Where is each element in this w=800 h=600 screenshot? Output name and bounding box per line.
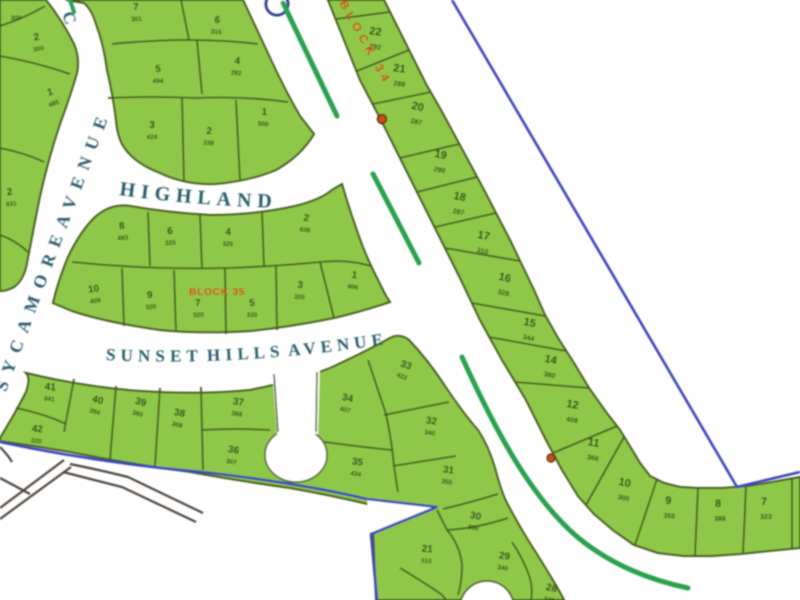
svg-text:315: 315 — [210, 29, 222, 37]
svg-text:21: 21 — [421, 544, 433, 556]
svg-text:18: 18 — [452, 190, 466, 204]
svg-text:9: 9 — [665, 495, 672, 507]
svg-text:29: 29 — [498, 550, 511, 563]
svg-text:42: 42 — [31, 424, 43, 436]
svg-text:386: 386 — [714, 516, 726, 523]
svg-text:7: 7 — [761, 496, 767, 508]
svg-text:300: 300 — [11, 15, 22, 22]
svg-text:338: 338 — [203, 140, 215, 148]
svg-text:5: 5 — [155, 64, 161, 75]
svg-text:510: 510 — [421, 558, 433, 566]
svg-text:10: 10 — [617, 476, 631, 490]
svg-text:5: 5 — [249, 298, 255, 309]
svg-text:323: 323 — [760, 514, 772, 521]
svg-text:636: 636 — [299, 226, 311, 234]
svg-text:8: 8 — [715, 498, 721, 510]
svg-text:320: 320 — [247, 312, 258, 319]
svg-text:12: 12 — [565, 398, 579, 412]
svg-text:325: 325 — [222, 241, 233, 248]
svg-text:500: 500 — [257, 121, 269, 129]
svg-text:2: 2 — [206, 126, 213, 137]
svg-text:483: 483 — [117, 234, 129, 242]
svg-text:BLOCK 35: BLOCK 35 — [189, 286, 245, 298]
svg-text:17: 17 — [476, 229, 490, 243]
svg-text:282: 282 — [230, 70, 242, 78]
svg-text:7: 7 — [133, 2, 140, 13]
svg-text:320: 320 — [294, 294, 306, 302]
svg-text:341: 341 — [43, 396, 55, 404]
svg-text:10: 10 — [87, 283, 100, 296]
svg-text:301: 301 — [131, 16, 143, 24]
svg-text:11: 11 — [587, 436, 601, 450]
svg-text:3: 3 — [149, 120, 155, 131]
svg-text:41: 41 — [44, 382, 56, 394]
svg-text:7: 7 — [195, 298, 202, 309]
svg-text:31: 31 — [442, 464, 455, 477]
svg-text:320: 320 — [193, 312, 205, 320]
svg-text:325: 325 — [165, 240, 176, 247]
svg-text:320: 320 — [30, 438, 42, 446]
svg-text:32: 32 — [425, 415, 438, 428]
svg-text:494: 494 — [153, 78, 164, 85]
svg-text:6: 6 — [167, 226, 173, 237]
svg-text:320: 320 — [145, 303, 157, 311]
svg-text:424: 424 — [147, 134, 158, 141]
svg-text:21: 21 — [393, 62, 407, 76]
svg-text:19: 19 — [433, 148, 447, 162]
svg-text:15: 15 — [522, 316, 536, 330]
svg-text:37: 37 — [232, 396, 245, 409]
svg-text:35: 35 — [351, 456, 364, 469]
svg-text:4: 4 — [225, 227, 231, 238]
svg-text:355: 355 — [663, 513, 675, 521]
